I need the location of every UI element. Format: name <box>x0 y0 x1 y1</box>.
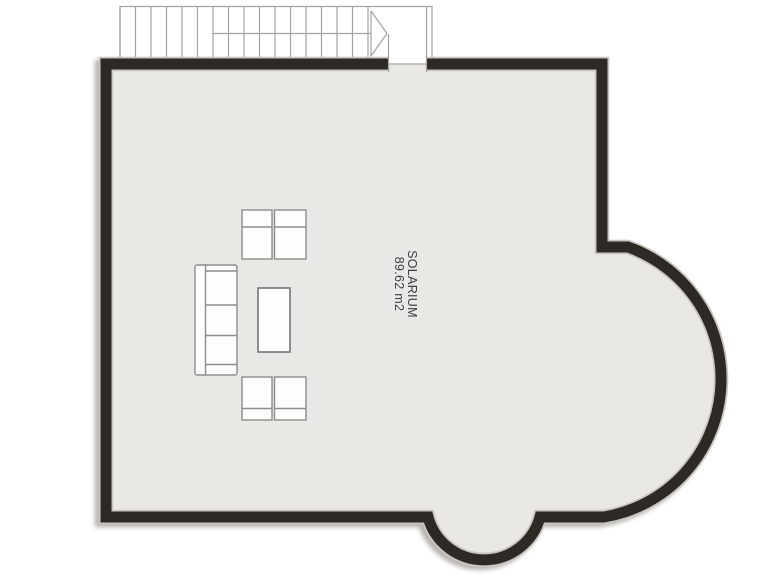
floor-plan: SOLARIUM 89.62 m2 <box>0 0 768 576</box>
room-label: SOLARIUM 89.62 m2 <box>392 239 418 329</box>
sofa <box>195 265 237 375</box>
armchair-top-left <box>242 210 272 259</box>
coffee-table <box>258 288 290 352</box>
stair-direction-arrow-icon <box>213 11 387 56</box>
room-area: 89.62 m2 <box>392 239 405 329</box>
stair-opening <box>388 7 427 75</box>
armchair-bottom-left <box>242 377 272 420</box>
armchair-bottom-right <box>275 377 307 420</box>
armchair-top-right <box>275 210 307 259</box>
floor-plan-drawing <box>0 0 768 576</box>
stair-treads <box>120 7 368 63</box>
room-name: SOLARIUM <box>405 239 418 329</box>
staircase <box>120 7 432 63</box>
